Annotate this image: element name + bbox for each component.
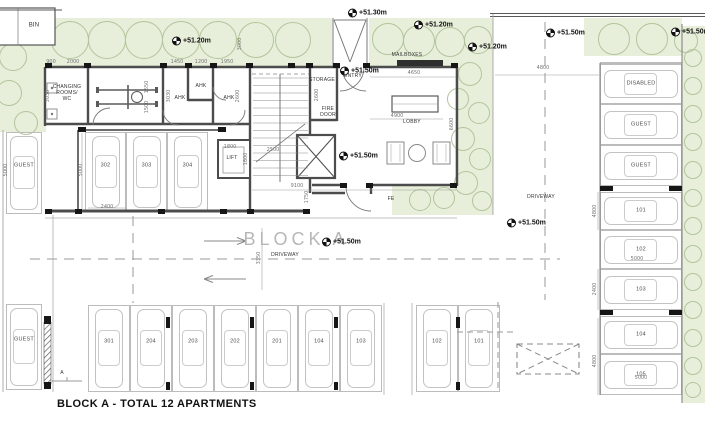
car-icon <box>92 136 120 208</box>
parking-space: 104 <box>600 316 682 354</box>
car-icon <box>305 309 333 388</box>
parking-space: 204 <box>130 305 172 392</box>
car-icon <box>423 309 451 388</box>
plan-label: AHK <box>196 83 207 89</box>
benchmark-icon <box>546 29 555 38</box>
plan-label: LIFT <box>226 155 237 161</box>
parking-space-label: GUEST <box>6 164 42 170</box>
parking-space-label: GUEST <box>600 163 682 169</box>
parking-space: 102 <box>416 305 458 392</box>
tree-icon <box>472 191 492 211</box>
dimension-label: 3030 <box>166 90 172 103</box>
car-cabin <box>426 330 448 366</box>
dimension-label: 3000 <box>237 38 243 51</box>
dimension-label: 3030 <box>45 90 51 103</box>
parking-space-label: 102 <box>416 339 458 345</box>
parking-space: 303 <box>126 132 167 212</box>
spot-level-label: +51.50m <box>350 153 378 160</box>
spot-level: +51.50m <box>339 152 378 161</box>
floor-plan: BLOCK A - TOTAL 12 APARTMENTS GUESTGUEST… <box>0 0 705 436</box>
parking-space-label: 104 <box>600 332 682 338</box>
parking-space-label: 101 <box>600 208 682 214</box>
parking-space-label: 101 <box>458 339 500 345</box>
spot-level-label: +51.20m <box>183 38 211 45</box>
tree-icon <box>51 21 89 59</box>
plan-label: STORAGE <box>309 77 335 83</box>
parking-space: 301 <box>88 305 130 392</box>
plan-label: DRIVEWAY <box>527 194 555 200</box>
spot-level-label: +51.30m <box>359 10 387 17</box>
benchmark-icon <box>322 238 331 247</box>
parking-space: 201 <box>256 305 298 392</box>
plan-label: DRIVEWAY <box>271 252 299 258</box>
tree-icon <box>451 127 475 151</box>
spot-level-label: +51.50m <box>518 220 546 227</box>
parking-space: 202 <box>214 305 256 392</box>
spot-level: +51.50m <box>340 67 379 76</box>
parking-space-label: 103 <box>600 287 682 293</box>
dimension-label: 2400 <box>101 204 114 210</box>
car-cabin <box>13 156 35 190</box>
tree-icon <box>684 49 702 67</box>
dimension-label: 1200 <box>195 59 208 65</box>
dimension-label: 1450 <box>171 59 184 65</box>
spot-level-label: +51.50m <box>351 68 379 75</box>
dimension-label: 4800 <box>537 65 550 71</box>
car-cabin <box>266 330 288 366</box>
car-icon <box>179 309 207 388</box>
tree-icon <box>458 62 482 86</box>
tree-icon <box>435 27 465 57</box>
car-icon <box>263 309 291 388</box>
tree-icon <box>684 133 702 151</box>
parking-space-label: 102 <box>600 247 682 253</box>
tree-icon <box>372 23 404 55</box>
car-cabin <box>95 155 117 188</box>
tree-icon <box>125 21 163 59</box>
parking-space: GUEST <box>6 132 42 214</box>
parking-space-label: GUEST <box>600 122 682 128</box>
parking-space: 102 <box>600 230 682 269</box>
spot-level: +51.30m <box>348 9 387 18</box>
tree-icon <box>469 148 491 170</box>
car-icon <box>133 136 161 208</box>
dimension-label: 1750 <box>304 191 310 204</box>
plan-label: BIN <box>29 22 40 29</box>
tree-icon <box>684 357 702 375</box>
parking-space: 101 <box>600 192 682 230</box>
tree-icon <box>598 23 630 55</box>
tree-icon <box>275 22 311 58</box>
car-icon <box>221 309 249 388</box>
benchmark-icon <box>172 37 181 46</box>
tree-icon <box>684 161 702 179</box>
car-cabin <box>98 330 120 366</box>
parking-space-label: 303 <box>126 163 167 169</box>
car-icon <box>465 309 493 388</box>
car-icon <box>137 309 165 388</box>
plan-label: AHK <box>224 95 235 101</box>
parking-space: 302 <box>85 132 126 212</box>
parking-space-label: 203 <box>172 339 214 345</box>
benchmark-icon <box>339 152 348 161</box>
parking-space: 304 <box>167 132 208 212</box>
parking-space: 103 <box>340 305 382 392</box>
parking-space-label: DISABLED <box>600 81 682 87</box>
dimension-label: 2600 <box>314 89 320 102</box>
car-icon <box>95 309 123 388</box>
plan-label: LOBBY <box>403 119 421 125</box>
tree-icon <box>684 301 702 319</box>
tree-icon <box>454 171 478 195</box>
dimension-label: 5000 <box>3 164 9 177</box>
car-cabin <box>136 155 158 188</box>
dimension-label: 900 <box>46 59 56 65</box>
tree-icon <box>433 187 455 209</box>
tree-icon <box>636 23 668 55</box>
tree-icon <box>684 77 702 95</box>
tree-icon <box>0 43 27 71</box>
benchmark-icon <box>414 21 423 30</box>
tree-icon <box>684 245 702 263</box>
spot-level-label: +51.50m <box>333 239 361 246</box>
parking-space: 103 <box>600 269 682 310</box>
benchmark-icon <box>671 28 680 37</box>
dimension-label: 3350 <box>256 252 262 265</box>
tree-icon <box>684 217 702 235</box>
parking-space-label: GUEST <box>6 337 42 343</box>
dimension-label: 1550 <box>144 81 150 94</box>
drawing-title: BLOCK A - TOTAL 12 APARTMENTS <box>57 398 257 410</box>
car-icon <box>10 308 38 386</box>
benchmark-icon <box>507 219 516 228</box>
parking-space-label: 104 <box>298 339 340 345</box>
dimension-label: 2600 <box>235 90 241 103</box>
parking-space: 101 <box>458 305 500 392</box>
plan-label: AHK <box>175 95 186 101</box>
dimension-label: 4900 <box>391 113 404 119</box>
car-cabin <box>350 330 372 366</box>
tree-icon <box>447 88 469 110</box>
plan-label: FIRE DOOR <box>320 106 336 118</box>
parking-space: 203 <box>172 305 214 392</box>
plan-label: A <box>60 370 64 376</box>
dimension-label: 4800 <box>592 355 598 368</box>
dimension-label: 4800 <box>592 205 598 218</box>
parking-space-label: 301 <box>88 339 130 345</box>
plan-label: FE <box>388 196 395 202</box>
spot-level-label: +51.20m <box>479 44 507 51</box>
spot-level-label: +51.50m <box>557 30 585 37</box>
spot-level: +51.50m <box>507 219 546 228</box>
dimension-label: 6600 <box>449 118 455 131</box>
car-cabin <box>140 330 162 366</box>
parking-space: GUEST <box>600 104 682 145</box>
dimension-label: 1800 <box>243 153 249 166</box>
spot-level: +51.50m <box>671 28 705 37</box>
parking-space: DISABLED <box>600 64 682 104</box>
spot-level: +51.50m <box>322 238 361 247</box>
car-icon <box>347 309 375 388</box>
spot-level: +51.20m <box>414 21 453 30</box>
car-cabin <box>182 330 204 366</box>
dimension-label: 1500 <box>144 101 150 114</box>
dimension-label: 5000 <box>631 256 644 262</box>
spot-level: +51.20m <box>468 43 507 52</box>
car-cabin <box>13 329 35 364</box>
parking-space-label: 304 <box>167 163 208 169</box>
car-cabin <box>224 330 246 366</box>
car-cabin <box>177 155 199 188</box>
dimension-label: 5000 <box>78 164 84 177</box>
dimension-label: 9100 <box>291 183 304 189</box>
spot-level-label: +51.20m <box>425 22 453 29</box>
dimension-label: 1800 <box>224 144 237 150</box>
parking-space: 104 <box>298 305 340 392</box>
parking-space-label: 302 <box>85 163 126 169</box>
plan-label: CHANGING ROOMS/ WC <box>53 84 82 102</box>
tree-icon <box>685 382 701 398</box>
car-cabin <box>308 330 330 366</box>
tree-icon <box>409 189 431 211</box>
tree-icon <box>684 105 702 123</box>
car-icon <box>10 136 38 210</box>
dimension-label: 2500 <box>267 147 280 153</box>
benchmark-icon <box>468 43 477 52</box>
parking-space-label: 202 <box>214 339 256 345</box>
benchmark-icon <box>348 9 357 18</box>
tree-icon <box>684 273 702 291</box>
plan-label: MAILBOXES <box>392 52 423 58</box>
parking-space-label: 204 <box>130 339 172 345</box>
parking-space-label: 103 <box>340 339 382 345</box>
dimension-label: 2400 <box>592 283 598 296</box>
spot-level: +51.20m <box>172 37 211 46</box>
dimension-label: 5000 <box>635 375 648 381</box>
spot-level-label: +51.50m <box>682 29 705 36</box>
spot-level: +51.50m <box>546 29 585 38</box>
car-icon <box>174 136 202 208</box>
tree-icon <box>238 22 274 58</box>
dimension-label: 1950 <box>221 59 234 65</box>
dimension-label: 4650 <box>408 70 421 76</box>
benchmark-icon <box>340 67 349 76</box>
tree-icon <box>684 329 702 347</box>
parking-space-label: 201 <box>256 339 298 345</box>
parking-space: GUEST <box>6 304 42 390</box>
tree-icon <box>88 21 126 59</box>
dimension-label: 2000 <box>67 59 80 65</box>
car-cabin <box>468 330 490 366</box>
tree-icon <box>468 102 490 124</box>
parking-space: GUEST <box>600 145 682 186</box>
tree-icon <box>684 189 702 207</box>
